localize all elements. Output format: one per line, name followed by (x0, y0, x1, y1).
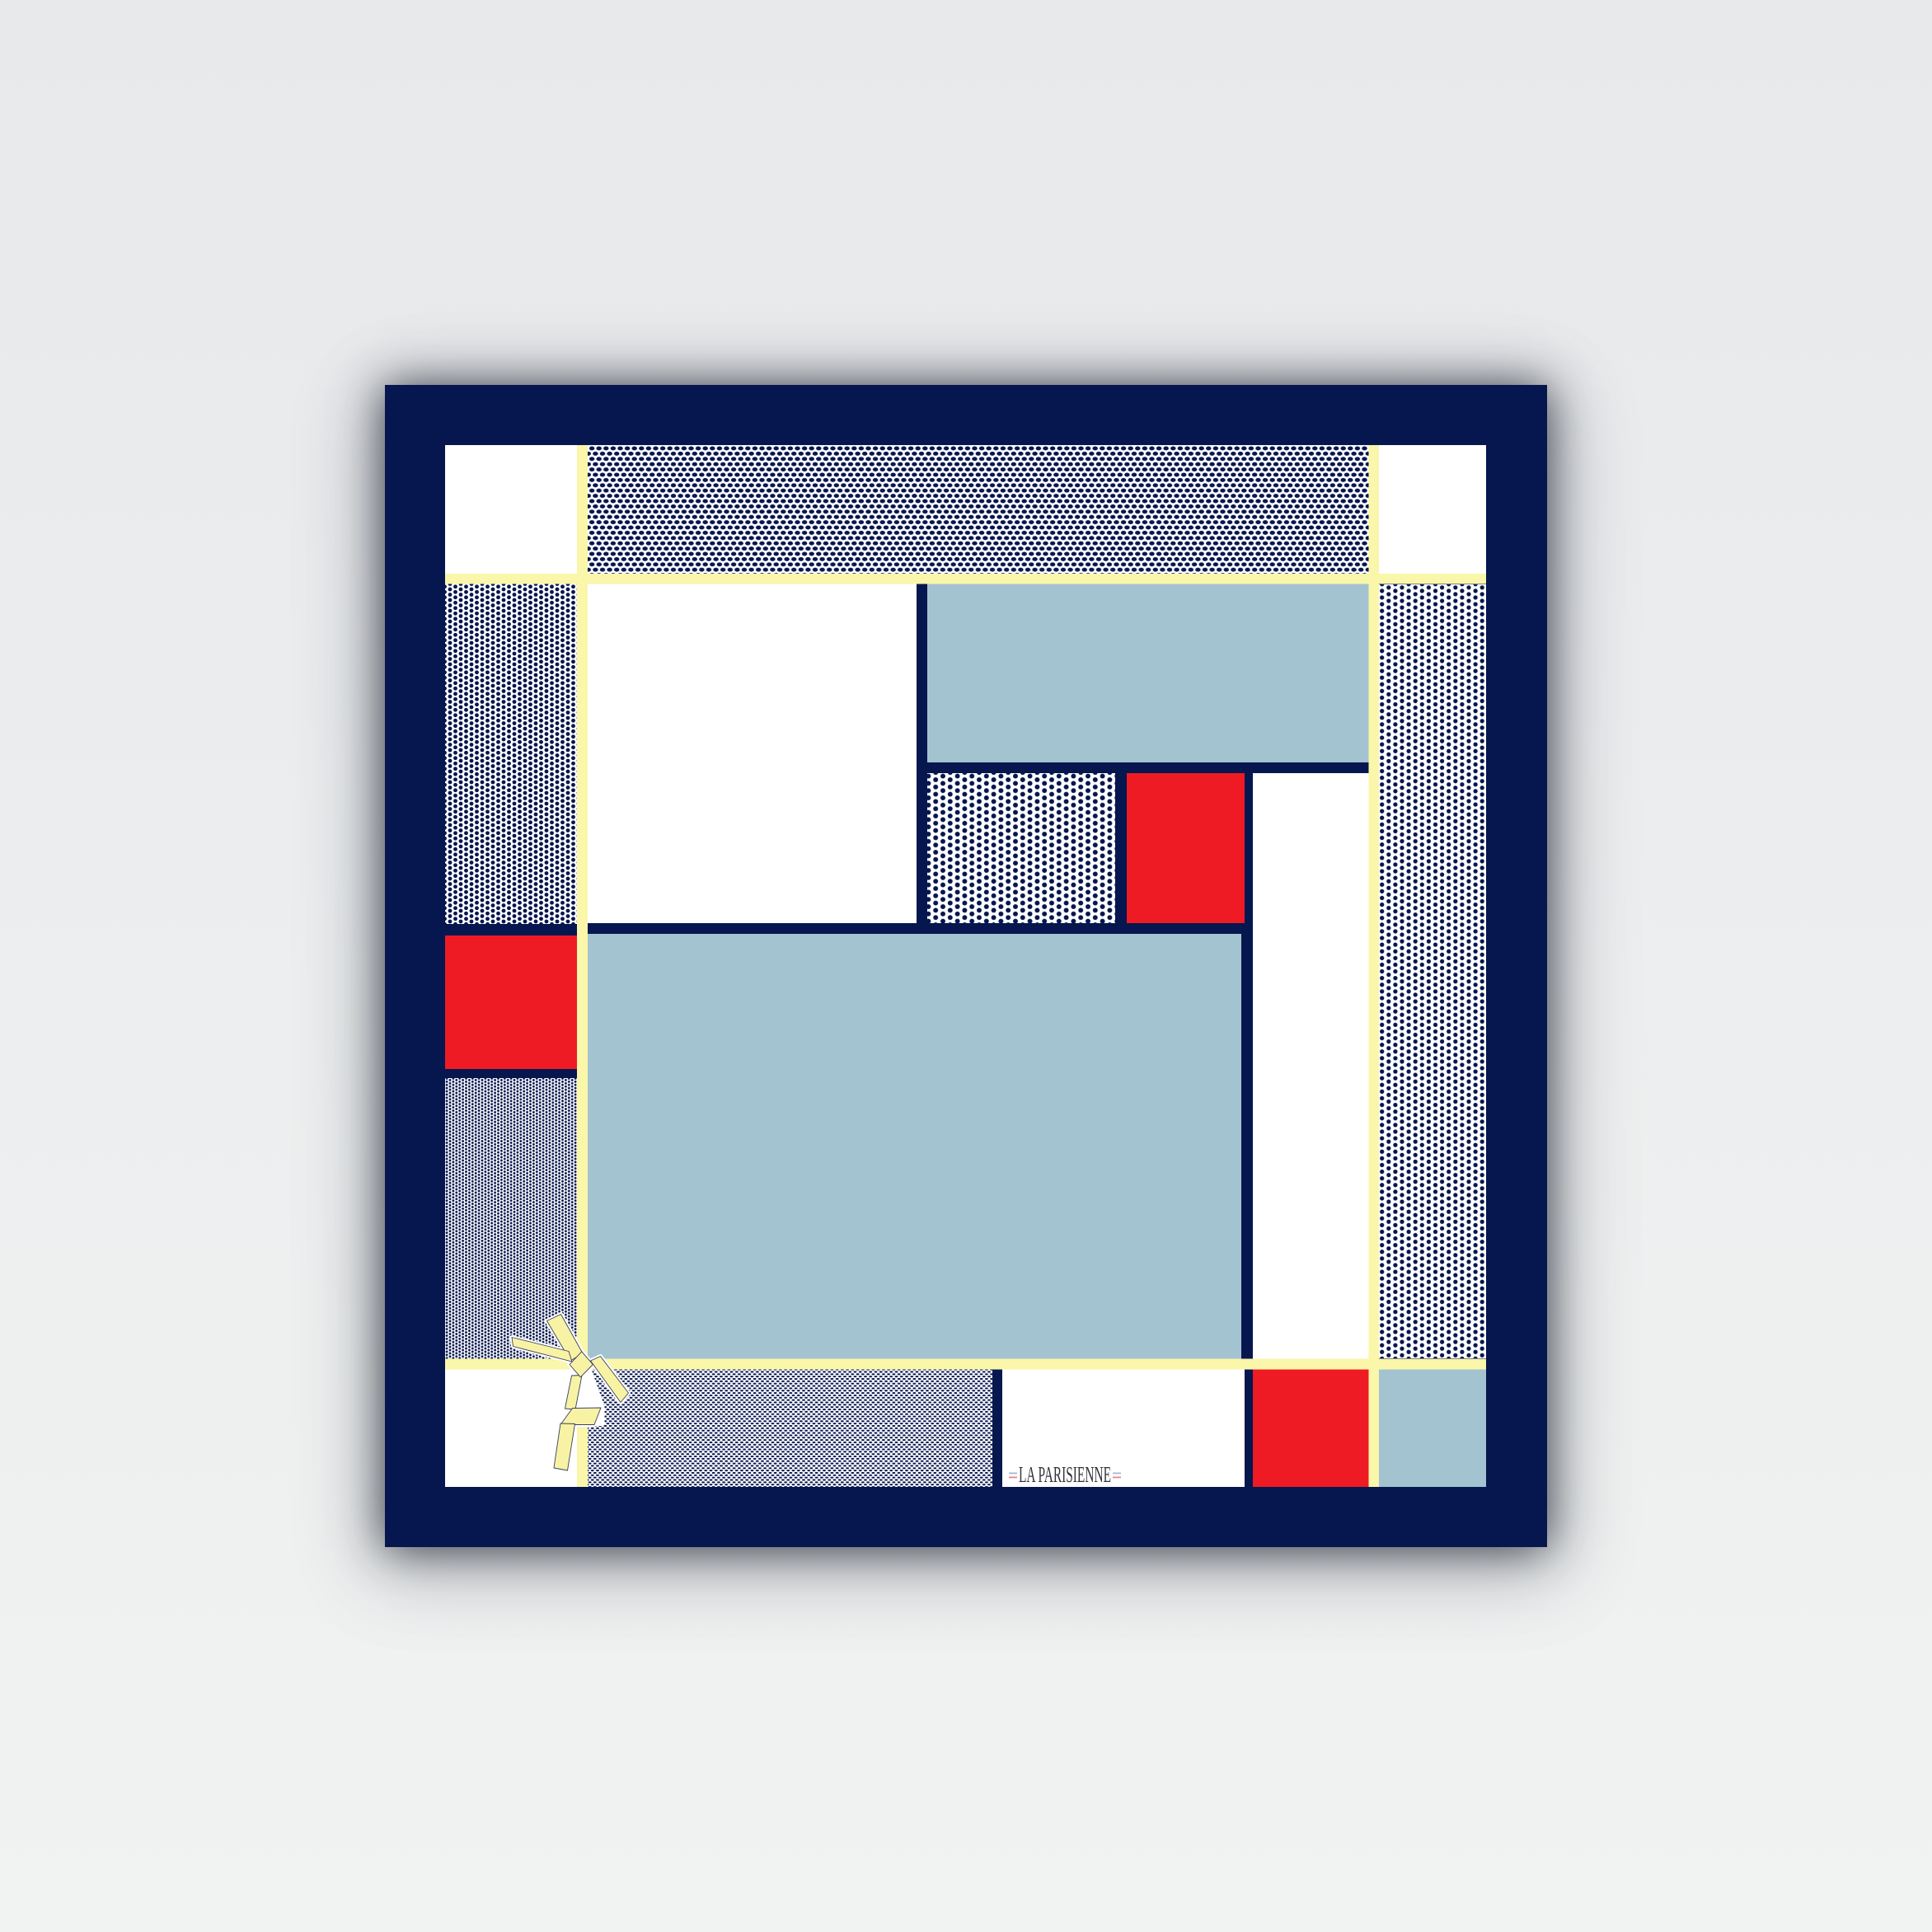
svg-text:LA PARISIENNE: LA PARISIENNE (1019, 1462, 1111, 1487)
